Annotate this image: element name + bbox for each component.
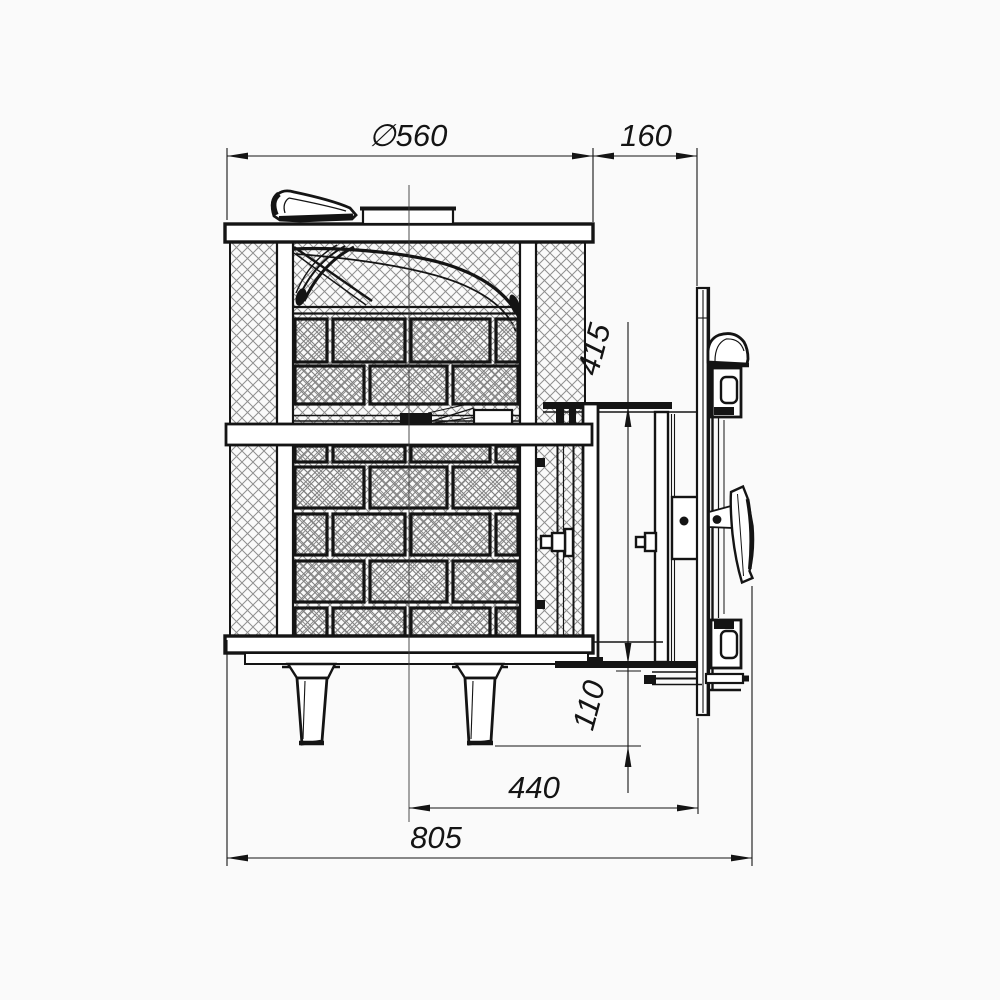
firebox-brick-lining <box>293 319 520 636</box>
bracket-hole <box>680 517 689 526</box>
cage-tab-lower <box>536 600 545 609</box>
chimney-collar <box>360 209 456 225</box>
dim-label-560: ∅560 <box>369 118 448 153</box>
technical-drawing-page: ∅560 160 415 110 440 <box>0 0 1000 1000</box>
dim-label-440: 440 <box>508 770 560 805</box>
tunnel-bottom-bar <box>555 661 708 668</box>
sauna-stove-section-drawing: ∅560 160 415 110 440 <box>0 0 1000 1000</box>
dim-label-160: 160 <box>620 118 672 153</box>
door-hinge-bottom <box>711 620 741 668</box>
cage-tab-upper <box>536 458 545 467</box>
base-pan <box>245 653 588 664</box>
dim-label-805: 805 <box>410 820 462 855</box>
door-hinge-top <box>711 368 741 417</box>
